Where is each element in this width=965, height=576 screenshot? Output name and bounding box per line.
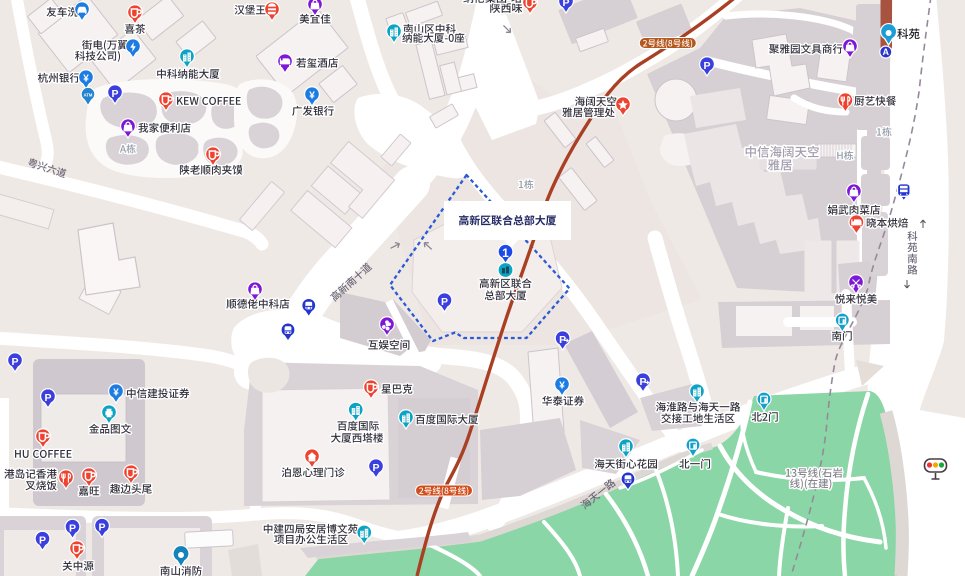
svg-text:P: P — [39, 534, 46, 546]
svg-text:P: P — [559, 334, 566, 346]
svg-text:P: P — [98, 521, 105, 533]
svg-text:ATM: ATM — [84, 93, 93, 98]
svg-text:P: P — [44, 392, 51, 404]
svg-text:P: P — [69, 522, 76, 534]
svg-text:P: P — [11, 356, 18, 368]
svg-text:P: P — [372, 462, 379, 474]
svg-text:P: P — [703, 60, 710, 72]
svg-text:P: P — [639, 376, 646, 388]
svg-text:A: A — [883, 47, 890, 57]
svg-text:1: 1 — [502, 246, 509, 260]
svg-text:¥: ¥ — [113, 388, 119, 399]
svg-text:¥: ¥ — [83, 74, 89, 85]
svg-text:P: P — [111, 88, 118, 100]
svg-text:¥: ¥ — [559, 381, 565, 392]
svg-text:P: P — [441, 296, 448, 308]
svg-text:P: P — [562, 0, 569, 9]
svg-text:¥: ¥ — [309, 91, 315, 102]
